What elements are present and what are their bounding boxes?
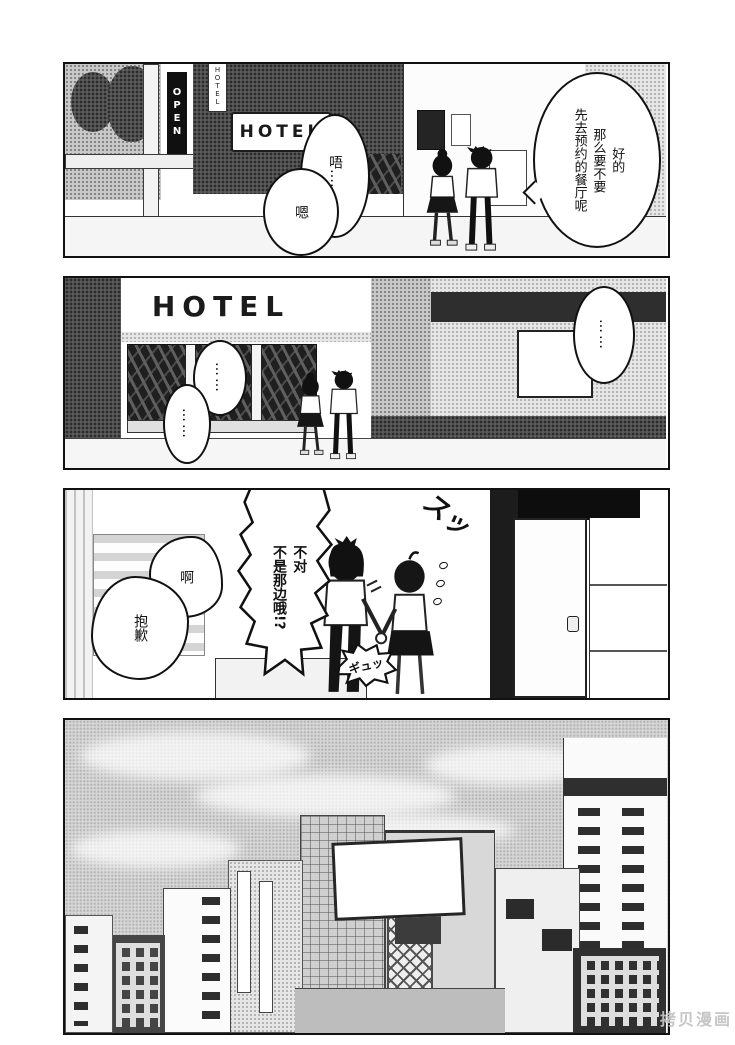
building-left-dark: [110, 935, 165, 1033]
window-column: [202, 897, 220, 1027]
balcony-band: [564, 778, 667, 796]
window: [506, 899, 534, 919]
characters-couple-walking: [289, 370, 367, 462]
wall-poster-dark: [417, 110, 445, 150]
building-left-white: [163, 888, 231, 1033]
window-column: [74, 926, 88, 1026]
building-mid-gray: [228, 860, 303, 1033]
wall-line: [590, 584, 667, 586]
panel-3: スッ ギュッ 不对 不: [63, 488, 670, 700]
speech-text: 好的 那么要不要 先去预约的餐厅呢: [569, 108, 626, 212]
speech-text: 抱歉: [130, 614, 150, 642]
panel-4: [63, 718, 670, 1035]
low-buildings: [295, 988, 505, 1034]
wall-poster-light: [451, 114, 471, 146]
left-wall: [65, 490, 93, 698]
window-pillar: [251, 344, 262, 422]
thought-bubble-sorry: 抱歉: [91, 576, 189, 680]
cloud: [195, 775, 455, 817]
building-front-right-dark: [573, 948, 666, 1033]
wall-line: [590, 650, 667, 652]
sign-trim: [121, 332, 371, 342]
hotel-vertical-sign: HOTEL: [208, 62, 227, 112]
building-far-left: [65, 915, 113, 1033]
vertical-sign: [259, 881, 273, 1013]
door: [513, 518, 587, 698]
watermark: 拷贝漫画: [660, 1006, 732, 1030]
manga-page: OPEN HOTEL HOTEL 好的 那么要: [0, 0, 735, 1045]
doorknob: [567, 616, 579, 632]
billboard-blank: [331, 837, 465, 921]
panel-2: HOTEL ……: [63, 276, 670, 470]
panel-1: OPEN HOTEL HOTEL 好的 那么要: [63, 62, 670, 258]
hotel-sign: HOTEL: [127, 282, 315, 330]
vertical-sign: [237, 871, 251, 993]
speech-text: ……: [177, 408, 197, 440]
speech-text-correction: 不对 不是那边哦!?: [251, 512, 327, 662]
cloud: [70, 830, 240, 868]
window: [542, 929, 572, 951]
speech-bubble-mm: 嗯: [263, 168, 339, 256]
cloud: [80, 732, 310, 780]
right-wall: [589, 518, 667, 698]
speech-text: ……: [594, 319, 614, 351]
curb-dark-band: [371, 416, 666, 438]
open-sign: OPEN: [167, 72, 187, 154]
speech-text: 啊: [176, 570, 196, 584]
building-right-mid: [495, 868, 580, 1033]
sfx-grip-bubble: ギュッ: [333, 640, 399, 688]
speech-bubble-reply: 好的 那么要不要 先去预约的餐厅呢: [533, 72, 661, 248]
speech-bubble-dots: ……: [573, 286, 635, 384]
pole: [143, 64, 159, 218]
characters-couple-walking: [417, 146, 509, 254]
window-grid: [116, 943, 160, 1027]
speech-bubble-dots: ……: [163, 384, 211, 464]
window-grid: [581, 956, 659, 1026]
speech-text: 嗯: [291, 205, 311, 219]
speech-text: ……: [210, 362, 230, 394]
